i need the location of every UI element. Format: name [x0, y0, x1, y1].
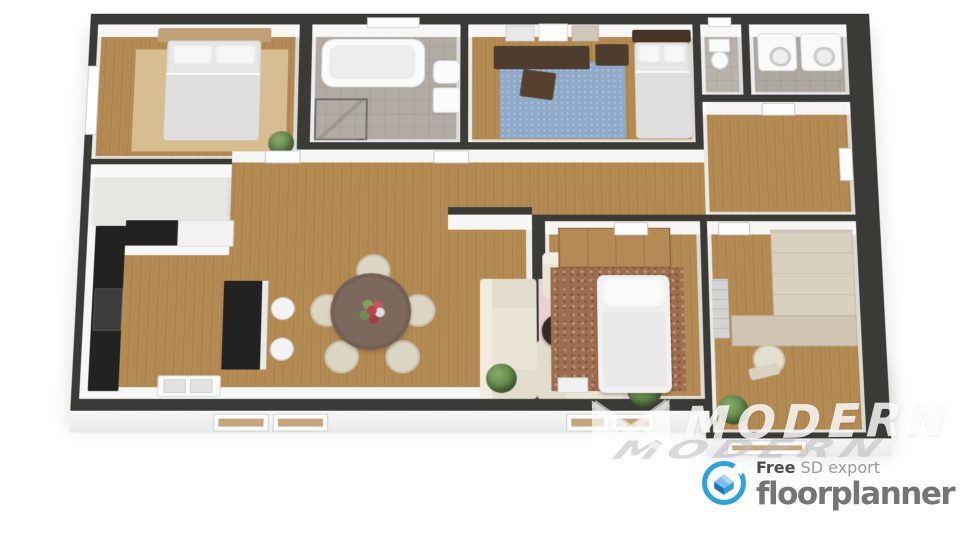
dryer	[800, 33, 843, 71]
bed-pillow	[216, 46, 256, 66]
kitchen-counter-top	[125, 220, 178, 244]
hallway-door	[265, 150, 301, 163]
dining-chair	[385, 340, 420, 373]
kitchen-cabinet	[177, 220, 234, 246]
kitchen-island	[221, 281, 262, 370]
facade-window	[273, 414, 329, 432]
nightstand	[595, 44, 629, 66]
watermark: MODERN	[591, 387, 960, 457]
kitchen-sink-basin	[163, 379, 186, 393]
free-label: Free	[756, 458, 796, 477]
watermark-text: MODERN	[683, 392, 956, 451]
bed-pillow	[172, 46, 212, 66]
floorplan-3d-view	[68, 14, 891, 447]
floorplan-stage: MODERN MODERN Free SD export floorplanne…	[0, 0, 960, 540]
office-cabinet	[770, 230, 856, 318]
brand-tagline: Free SD export	[756, 460, 954, 476]
plant-icon	[486, 364, 517, 393]
floorplanner-logo-icon	[702, 461, 746, 505]
kitchen-stove	[93, 288, 123, 330]
living-partition-wall	[448, 207, 532, 214]
bathtub-basin	[329, 45, 416, 79]
toilet-tank	[708, 39, 730, 52]
right-wing-hallway	[702, 102, 855, 215]
bed-blanket	[163, 73, 260, 140]
bed-pillow	[638, 46, 660, 64]
table-flowers	[367, 306, 377, 316]
floorplanner-brand: Free SD export floorplanner	[702, 458, 954, 510]
logo-house-icon	[711, 471, 737, 497]
wall-art	[538, 24, 567, 42]
brand-text: Free SD export floorplanner	[756, 458, 954, 510]
living-partition-wall-face	[448, 215, 532, 230]
bed-pillow	[664, 46, 686, 64]
wall-art	[572, 25, 600, 41]
hallway-door	[433, 150, 469, 163]
kitchen-sink-basin	[190, 379, 213, 393]
floor-vent	[558, 377, 589, 393]
tufted-panel	[712, 279, 730, 339]
bathroom-sink	[433, 87, 461, 112]
washing-machine	[757, 33, 798, 71]
facade-window	[213, 414, 269, 432]
bed-cushion	[602, 279, 665, 310]
bathroom-window	[367, 17, 420, 28]
bed-blanket	[602, 311, 667, 387]
bed-blanket	[635, 71, 692, 138]
desk-chair	[519, 69, 556, 100]
right-wing-east-door	[838, 148, 853, 181]
bedroom-2-desk	[494, 46, 590, 69]
watermark-bowtie-m-icon	[592, 399, 671, 450]
toilet	[711, 51, 729, 69]
bedroom-3-door	[614, 222, 648, 235]
toilet	[433, 60, 461, 83]
bedroom-2-blue-rug	[500, 62, 627, 138]
wall-art	[505, 25, 534, 41]
office-desk	[731, 315, 858, 346]
living-south-wall-face	[79, 387, 533, 399]
export-label: SD export	[796, 458, 880, 477]
wc-window	[708, 17, 732, 27]
right-wing-door	[761, 103, 795, 116]
bedroom-2-headboard	[632, 30, 691, 43]
office-door	[718, 222, 750, 235]
shower-enclosure	[314, 98, 368, 140]
brand-product-name: floorplanner	[756, 479, 954, 510]
